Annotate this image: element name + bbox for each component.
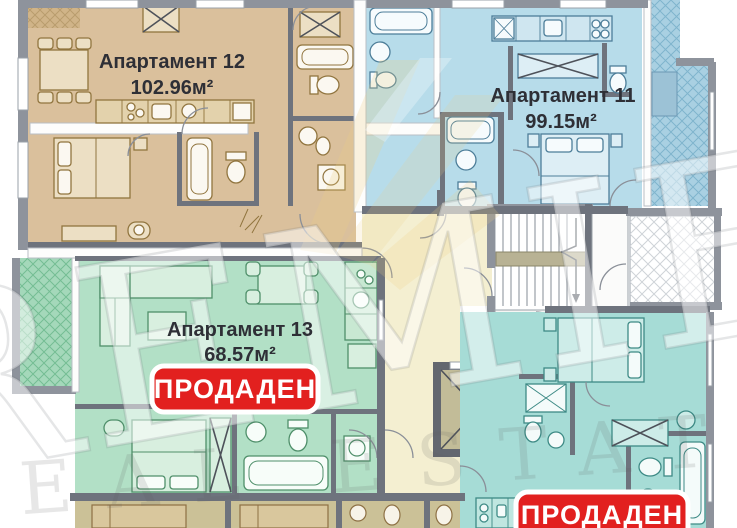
sink-icon bbox=[370, 42, 390, 62]
kitchen-counter-icon bbox=[492, 16, 612, 41]
bathtub-icon bbox=[370, 8, 432, 34]
apartment-12-name: Апартамент 12 bbox=[99, 51, 245, 73]
sold-badge-text: ПРОДАДЕН bbox=[521, 500, 683, 528]
apartment-13-name: Апартамент 13 bbox=[167, 319, 313, 341]
dining-table-icon bbox=[38, 38, 91, 103]
stove-icon bbox=[480, 504, 488, 512]
toilet-icon bbox=[436, 505, 452, 525]
apartment-12-area: 102.96м² bbox=[131, 77, 214, 99]
bathtub-icon bbox=[297, 45, 353, 69]
toilet-icon bbox=[226, 152, 246, 183]
sink-icon bbox=[152, 104, 171, 119]
sold-badge-ap14: ПРОДАДЕН bbox=[516, 492, 688, 528]
toilet-icon bbox=[310, 76, 339, 94]
sold-badge-ap13: ПРОДАДЕН bbox=[152, 366, 318, 412]
sink-icon bbox=[544, 20, 562, 36]
toilet-icon bbox=[384, 505, 400, 525]
bathtub-icon bbox=[187, 138, 212, 200]
toilet-icon bbox=[316, 137, 330, 155]
stove-icon bbox=[592, 20, 600, 28]
sink-icon bbox=[497, 505, 506, 517]
kitchen-counter-icon bbox=[96, 100, 254, 123]
floor-plan-svg: PREMIER REAL ESTATE Апартамент 12 102.96… bbox=[0, 0, 737, 528]
apartment-11-area: 99.15м² bbox=[525, 111, 597, 133]
apartment-11-name: Апартамент 11 bbox=[490, 85, 635, 107]
wardrobe-icon bbox=[518, 54, 598, 78]
apartment-13-area: 68.57м² bbox=[204, 344, 276, 366]
floor-plan-page: PREMIER REAL ESTATE Апартамент 12 102.96… bbox=[0, 0, 737, 528]
sold-badge-text: ПРОДАДЕН bbox=[154, 374, 316, 404]
hallway-band bbox=[30, 123, 248, 134]
